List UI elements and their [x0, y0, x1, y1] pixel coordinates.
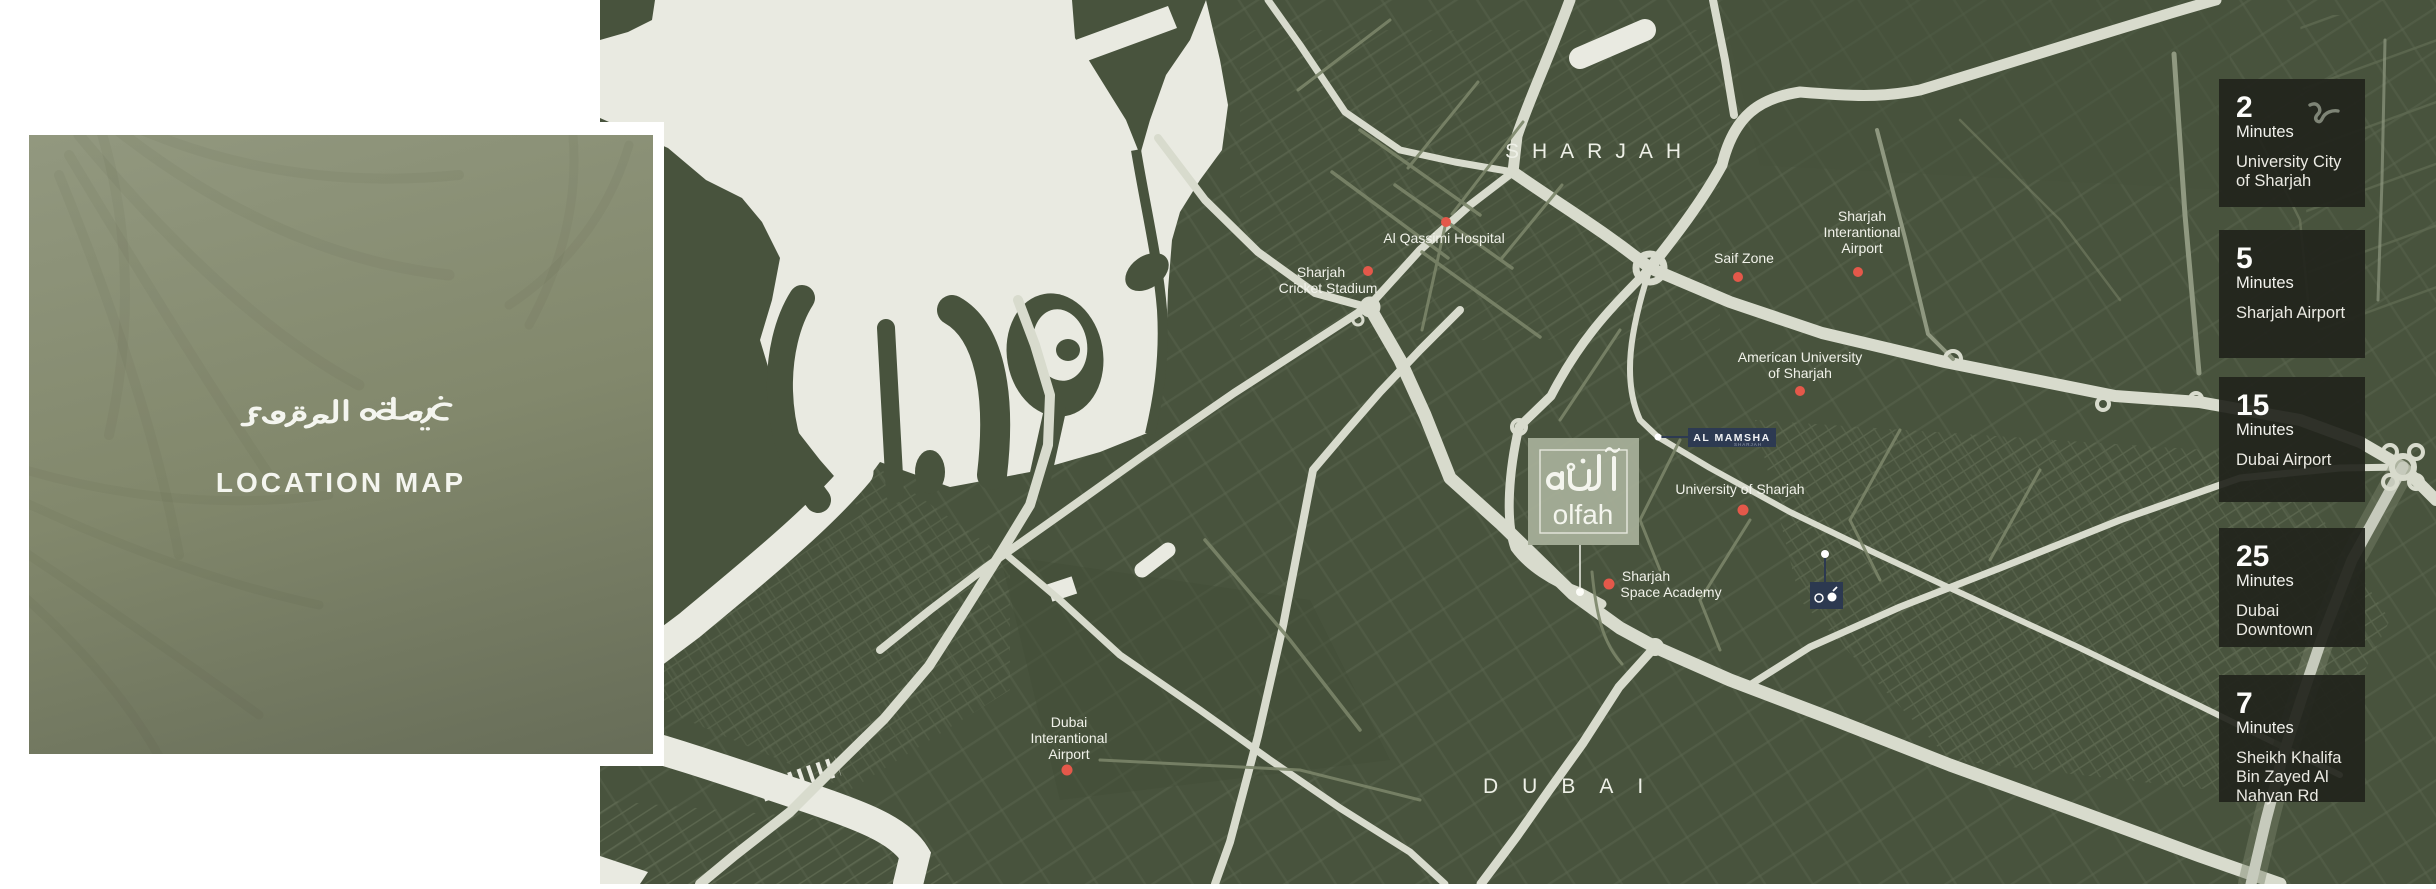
svg-text:Dubai: Dubai — [1051, 714, 1088, 730]
svg-text:Space Academy: Space Academy — [1620, 584, 1721, 600]
svg-text:Al Qassimi Hospital: Al Qassimi Hospital — [1383, 230, 1504, 246]
svg-text:olfah: olfah — [1553, 499, 1614, 530]
svg-text:University of Sharjah: University of Sharjah — [1675, 481, 1804, 497]
svg-text:Sharjah: Sharjah — [1838, 208, 1886, 224]
svg-text:American University: American University — [1738, 349, 1862, 365]
svg-text:of Sharjah: of Sharjah — [1768, 365, 1832, 381]
svg-text:Cricket Stadium: Cricket Stadium — [1279, 280, 1378, 296]
svg-text:DUBAI: DUBAI — [1483, 775, 1667, 798]
svg-text:Interantional: Interantional — [1823, 224, 1900, 240]
svg-text:SHARJAH: SHARJAH — [1734, 442, 1762, 447]
svg-text:Sharjah: Sharjah — [1622, 568, 1670, 584]
svg-text:SHARJAH: SHARJAH — [1505, 140, 1694, 163]
svg-text:Airport: Airport — [1048, 746, 1089, 762]
svg-text:Airport: Airport — [1841, 240, 1882, 256]
svg-text:Sharjah: Sharjah — [1297, 264, 1345, 280]
svg-text:Saif Zone: Saif Zone — [1714, 250, 1774, 266]
svg-text:Interantional: Interantional — [1030, 730, 1107, 746]
